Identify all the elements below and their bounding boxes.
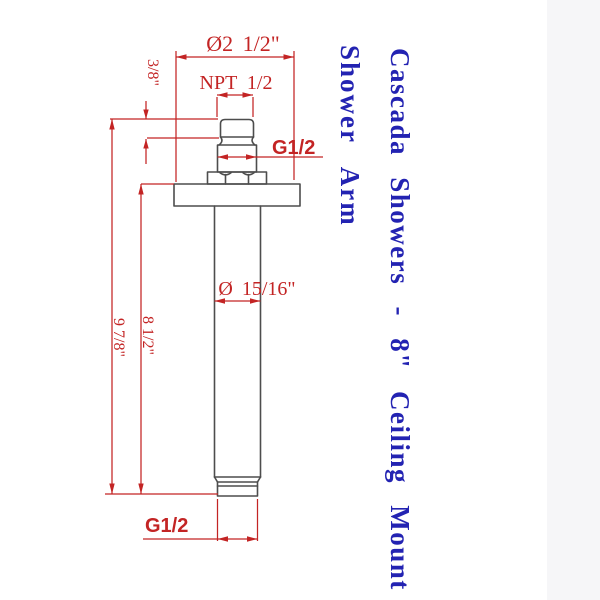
ceiling-flange xyxy=(174,184,300,206)
extension-lines xyxy=(176,51,294,182)
groove-right xyxy=(252,137,255,145)
dimension-label-pipe-diameter: Ø 15/16" xyxy=(218,278,295,300)
dimension-overall-length: 9 7/8" xyxy=(109,119,218,494)
dimension-label-thread-length: 3/8" xyxy=(144,59,161,86)
dimension-arm-length: 8 1/2" xyxy=(138,184,174,494)
arrowhead-right xyxy=(247,536,258,541)
drop-pipe xyxy=(215,206,261,477)
dimension-label-g-thread-bottom: G1/2 xyxy=(145,515,188,537)
drawing-canvas: Ø2 1/2" NPT 1/2 3/8" G1/2 Ø 15/16" 9 7/8 xyxy=(0,0,600,600)
extension-lines xyxy=(218,499,258,541)
bottom-thread-collar xyxy=(218,482,258,496)
dimension-g-thread-bottom: G1/2 xyxy=(143,499,258,542)
dimension-g-thread-top: G1/2 xyxy=(218,137,324,160)
product-title-line1: Cascada Showers - 8" Ceiling Mount xyxy=(385,48,415,591)
hex-nut xyxy=(208,172,267,184)
arrowhead-up xyxy=(143,139,148,149)
page-edge-shading xyxy=(547,0,600,600)
arrowhead-left xyxy=(218,154,229,159)
arrowhead-down xyxy=(109,484,114,495)
groove-left xyxy=(219,137,222,145)
hex-nut-facets xyxy=(226,175,249,185)
arrowhead-up xyxy=(109,119,114,130)
dimension-npt-thread: NPT 1/2 xyxy=(200,72,273,117)
arrowhead-down xyxy=(138,484,143,495)
arrowhead-left xyxy=(176,54,187,59)
technical-drawing: Ø2 1/2" NPT 1/2 3/8" G1/2 Ø 15/16" 9 7/8 xyxy=(0,0,600,600)
product-title-line2: Shower Arm xyxy=(335,45,365,227)
dimension-label-overall-length: 9 7/8" xyxy=(110,318,127,357)
dimension-label-arm-length: 8 1/2" xyxy=(139,316,156,355)
dimension-label-flange-diameter: Ø2 1/2" xyxy=(206,31,279,56)
arrowhead-right xyxy=(246,154,257,159)
extension-lines xyxy=(217,97,253,117)
dimension-label-g-thread-top: G1/2 xyxy=(272,137,315,159)
arrowhead-down xyxy=(143,110,148,120)
arrowhead-right xyxy=(284,54,295,59)
arrowhead-up xyxy=(138,184,143,195)
dimension-pipe-diameter: Ø 15/16" xyxy=(215,278,296,304)
arrowhead-left xyxy=(218,536,229,541)
dimension-label-npt: NPT 1/2 xyxy=(200,72,273,94)
shower-arm-outline xyxy=(174,120,300,497)
title-block: Cascada Showers - 8" Ceiling Mount Showe… xyxy=(335,45,415,591)
dimension-flange-diameter: Ø2 1/2" xyxy=(176,31,294,182)
npt-nipple xyxy=(221,120,254,138)
